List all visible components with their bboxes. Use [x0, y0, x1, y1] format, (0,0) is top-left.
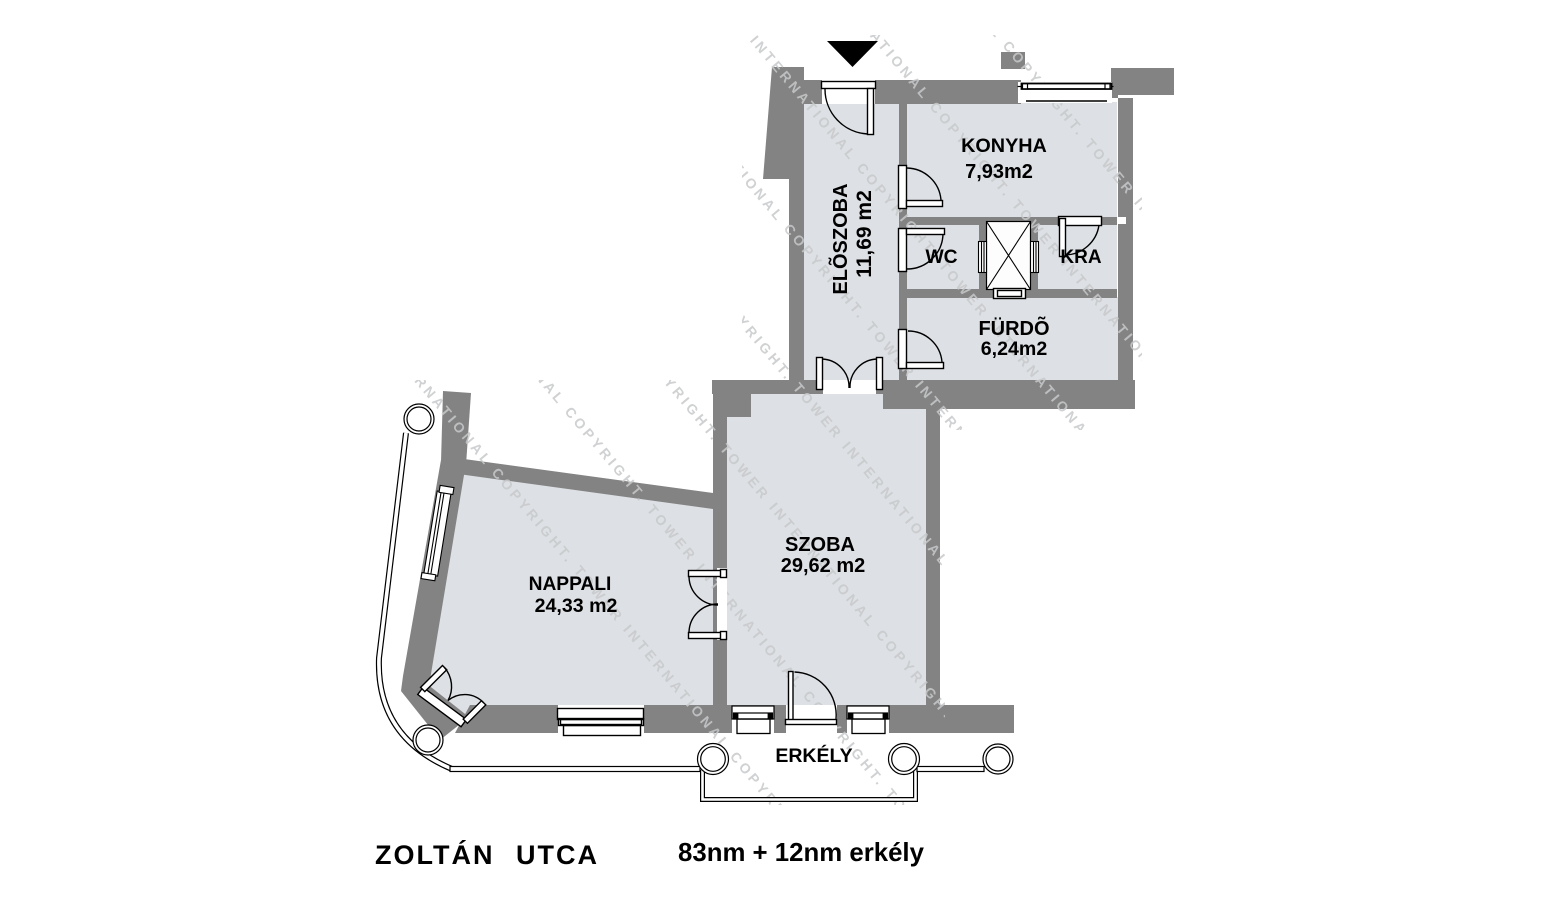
svg-text:ZOLTÁNUTCA: ZOLTÁNUTCA: [375, 839, 599, 870]
svg-text:24,33 m2: 24,33 m2: [535, 595, 618, 617]
svg-text:7,93m2: 7,93m2: [965, 161, 1033, 183]
svg-text:6,24m2: 6,24m2: [981, 338, 1048, 360]
svg-text:ELÕSZOBA: ELÕSZOBA: [828, 183, 852, 294]
svg-text:NAPPALI: NAPPALI: [529, 574, 612, 595]
svg-text:SZOBA: SZOBA: [785, 534, 855, 556]
svg-text:FÜRDÕ: FÜRDÕ: [978, 316, 1049, 340]
svg-text:29,62 m2: 29,62 m2: [781, 555, 866, 577]
svg-text:KONYHA: KONYHA: [961, 135, 1047, 157]
svg-text:11,69 m2: 11,69 m2: [853, 190, 876, 278]
svg-text:KRA: KRA: [1060, 247, 1101, 268]
svg-text:83nm + 12nm erkély: 83nm + 12nm erkély: [678, 839, 925, 867]
svg-text:WC: WC: [925, 247, 957, 268]
svg-text:ERKÉLY: ERKÉLY: [775, 744, 852, 767]
